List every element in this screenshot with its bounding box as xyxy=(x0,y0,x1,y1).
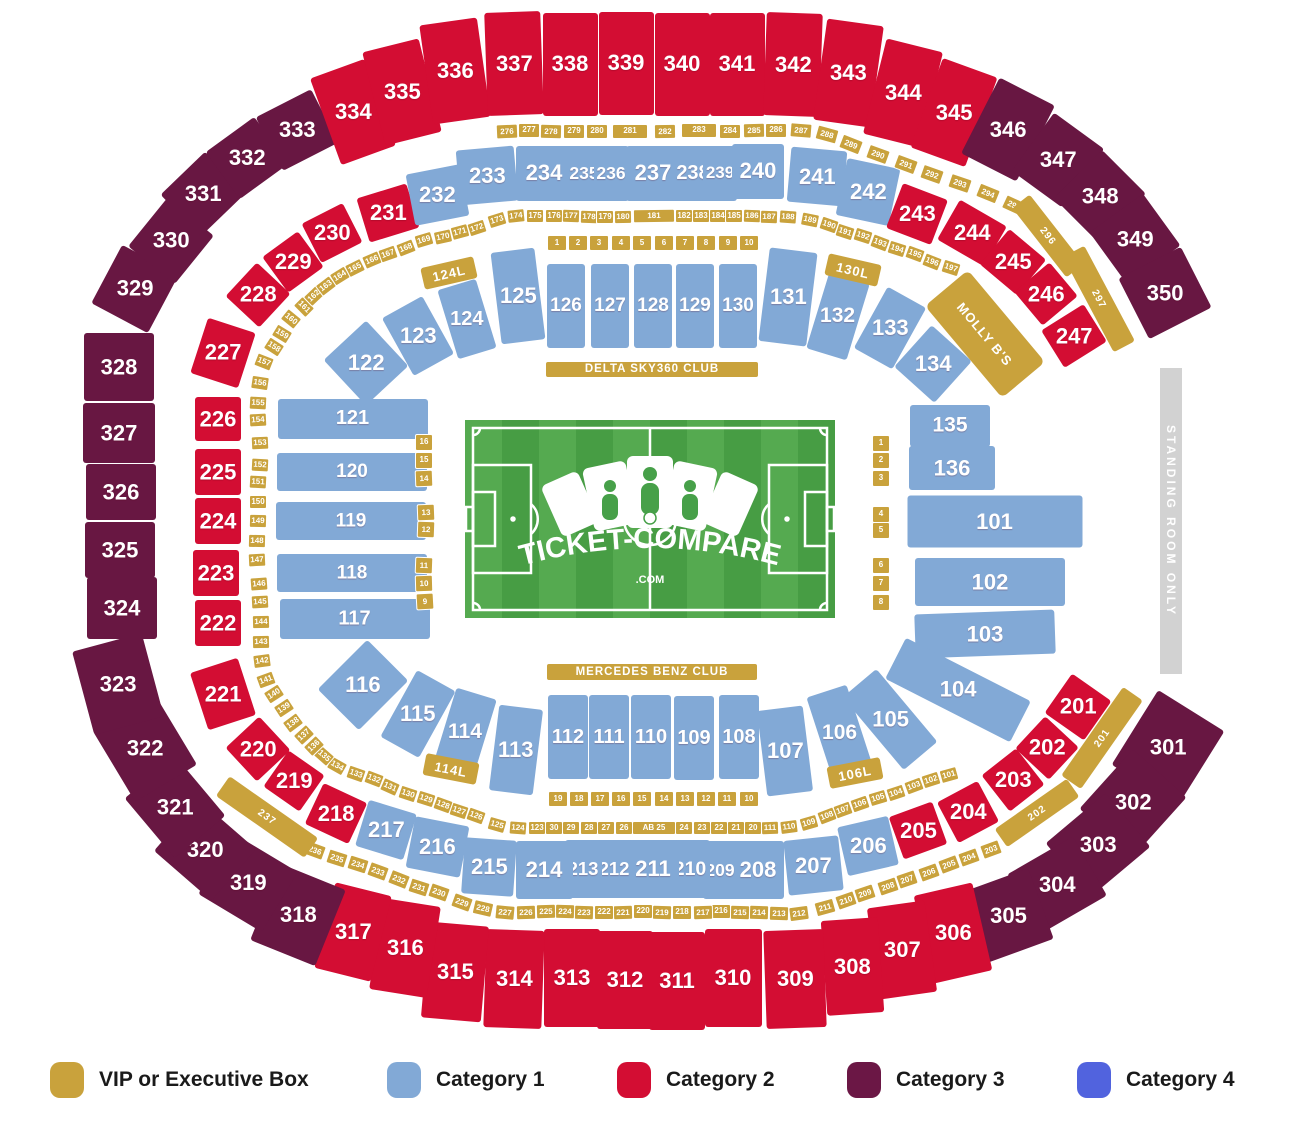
exec-ring-176[interactable]: 176 xyxy=(545,209,563,223)
section-label: 345 xyxy=(936,99,973,125)
section-223[interactable]: 223 xyxy=(193,550,239,596)
fieldcol-right-4[interactable]: 4 xyxy=(872,506,890,523)
section-label: 244 xyxy=(954,220,991,246)
section-label: 122 xyxy=(348,350,385,376)
section-label: 332 xyxy=(229,145,266,171)
suite-top-276[interactable]: 276 xyxy=(496,123,519,139)
section-309[interactable]: 309 xyxy=(763,929,826,1029)
exec-ring-183[interactable]: 183 xyxy=(692,209,710,223)
fieldrow-top-6[interactable]: 6 xyxy=(654,235,674,251)
section-129[interactable]: 129 xyxy=(676,264,714,348)
fieldrow-top-10[interactable]: 10 xyxy=(739,235,759,251)
section-208[interactable]: 208 xyxy=(732,841,784,899)
suite-bottom-234[interactable]: 234 xyxy=(346,854,370,874)
section-125[interactable]: 125 xyxy=(491,248,546,345)
section-226[interactable]: 226 xyxy=(195,397,241,441)
section-314[interactable]: 314 xyxy=(483,929,544,1029)
section-227[interactable]: 227 xyxy=(190,318,255,389)
section-340[interactable]: 340 xyxy=(655,13,710,116)
section-label: 326 xyxy=(103,479,140,505)
section-label: 315 xyxy=(437,959,474,985)
section-341[interactable]: 341 xyxy=(710,13,765,116)
section-313[interactable]: 313 xyxy=(544,929,600,1027)
section-111[interactable]: 111 xyxy=(589,695,629,779)
fieldcol-left-14[interactable]: 14 xyxy=(415,469,434,487)
suite-bottom-204[interactable]: 204 xyxy=(957,847,981,868)
exec-ring-152[interactable]: 152 xyxy=(251,458,270,473)
suite-top-283[interactable]: 283 xyxy=(681,123,717,138)
section-204[interactable]: 204 xyxy=(937,781,999,843)
section-323[interactable]: 323 xyxy=(72,633,164,735)
exec-ring-145[interactable]: 145 xyxy=(251,595,270,610)
section-338[interactable]: 338 xyxy=(543,13,598,116)
section-label: 349 xyxy=(1117,226,1154,252)
section-label: 112 xyxy=(552,726,584,749)
section-label: 113 xyxy=(498,737,534,763)
exec-ring-142[interactable]: 142 xyxy=(252,653,272,669)
fieldrow-top-7[interactable]: 7 xyxy=(675,235,695,251)
section-label: 131 xyxy=(770,284,807,310)
section-label: 118 xyxy=(337,562,368,584)
section-label: 105 xyxy=(872,706,909,732)
section-label: 319 xyxy=(230,870,267,896)
suite-bottom-230[interactable]: 230 xyxy=(427,882,451,903)
fieldrow-bottom-15[interactable]: 15 xyxy=(632,791,652,807)
exec-ring-124[interactable]: 124 xyxy=(509,820,528,835)
suite-top-281[interactable]: 281 xyxy=(612,124,648,139)
section-310[interactable]: 310 xyxy=(705,929,762,1027)
exec-ring-104[interactable]: 104 xyxy=(885,784,907,803)
section-113[interactable]: 113 xyxy=(489,705,543,796)
section-label: 346 xyxy=(990,116,1027,142)
exec-ring-182[interactable]: 182 xyxy=(675,209,693,223)
suite-bottom-228[interactable]: 228 xyxy=(472,898,495,917)
legend-item-category-1: Category 1 xyxy=(387,1062,545,1098)
section-240[interactable]: 240 xyxy=(732,144,784,199)
suite-bottom-222[interactable]: 222 xyxy=(594,905,614,920)
section-311[interactable]: 311 xyxy=(649,932,705,1030)
section-label: 120 xyxy=(336,461,368,483)
exec-ring-151[interactable]: 151 xyxy=(249,475,268,490)
exec-ring-180[interactable]: 180 xyxy=(614,210,632,224)
suite-bottom-213[interactable]: 213 xyxy=(769,905,789,920)
section-119[interactable]: 119 xyxy=(276,502,426,540)
section-216[interactable]: 216 xyxy=(405,816,469,878)
section-label: 214 xyxy=(526,857,563,883)
exec-ring-105[interactable]: 105 xyxy=(867,789,888,808)
section-label: 337 xyxy=(496,50,533,76)
section-label: 328 xyxy=(101,354,138,380)
fieldcol-left-10[interactable]: 10 xyxy=(415,574,433,591)
section-234[interactable]: 234 xyxy=(516,146,573,201)
section-label: 317 xyxy=(335,919,372,945)
section-128[interactable]: 128 xyxy=(634,264,672,348)
section-label: 227 xyxy=(205,340,242,366)
fieldcol-right-3[interactable]: 3 xyxy=(872,470,890,487)
suite-bottom-221[interactable]: 221 xyxy=(613,904,633,920)
section-label: 314 xyxy=(496,966,533,992)
section-112[interactable]: 112 xyxy=(548,695,588,779)
section-label: 129 xyxy=(679,295,711,317)
section-121[interactable]: 121 xyxy=(278,399,428,439)
legend-item-category-3: Category 3 xyxy=(847,1062,1005,1098)
section-label: 211 xyxy=(635,856,671,882)
section-label: 225 xyxy=(200,459,237,485)
section-label: 125 xyxy=(500,283,537,309)
section-label: 218 xyxy=(318,800,355,826)
section-label: 338 xyxy=(552,51,589,77)
stadium-map: TICKET-COMPARE .COM 30130230330430530630… xyxy=(0,0,1298,1136)
section-label: 233 xyxy=(469,162,506,188)
suite-bottom-231[interactable]: 231 xyxy=(407,877,431,897)
section-label: 322 xyxy=(127,735,164,761)
section-label: 312 xyxy=(607,967,644,993)
section-211[interactable]: 211 xyxy=(627,840,679,898)
suite-bottom-212[interactable]: 212 xyxy=(788,904,810,921)
fieldrow-bottom-10[interactable]: 10 xyxy=(739,791,759,807)
section-107[interactable]: 107 xyxy=(757,706,813,797)
section-126[interactable]: 126 xyxy=(547,264,585,348)
section-222[interactable]: 222 xyxy=(195,600,241,646)
section-label: 237 xyxy=(635,160,672,186)
section-326[interactable]: 326 xyxy=(86,464,156,520)
section-label: 133 xyxy=(872,315,909,341)
section-135[interactable]: 135 xyxy=(910,405,990,447)
fieldcol-left-12[interactable]: 12 xyxy=(417,520,436,538)
suite-top-278[interactable]: 278 xyxy=(540,123,562,138)
fieldrow-top-9[interactable]: 9 xyxy=(718,235,738,251)
section-label: 339 xyxy=(608,50,645,76)
fieldcol-left-15[interactable]: 15 xyxy=(415,452,433,469)
suite-bottom-203[interactable]: 203 xyxy=(979,839,1003,860)
section-207[interactable]: 207 xyxy=(783,835,843,895)
section-label: 247 xyxy=(1056,323,1093,349)
suite-top-294[interactable]: 294 xyxy=(975,182,1001,204)
fieldcol-right-7[interactable]: 7 xyxy=(872,575,890,592)
section-101[interactable]: 101 xyxy=(908,495,1083,547)
section-312[interactable]: 312 xyxy=(597,931,653,1029)
section-label: 111 xyxy=(593,726,624,749)
suite-bottom-226[interactable]: 226 xyxy=(516,904,536,919)
exec-ring-185[interactable]: 185 xyxy=(725,209,743,223)
section-label: 209 xyxy=(705,860,734,881)
fieldcol-right-8[interactable]: 8 xyxy=(872,594,890,611)
exec-ring-123[interactable]: 123 xyxy=(528,821,546,835)
section-label: 309 xyxy=(777,966,814,992)
exec-ring-26[interactable]: 26 xyxy=(615,821,633,835)
fieldcol-right-5[interactable]: 5 xyxy=(872,522,890,539)
section-label: 208 xyxy=(740,857,777,883)
section-label: 103 xyxy=(967,621,1004,647)
exec-ring-175[interactable]: 175 xyxy=(526,209,544,223)
section-236[interactable]: 236 xyxy=(594,146,629,201)
section-label: 239 xyxy=(706,163,734,183)
section-label: 318 xyxy=(280,902,317,928)
section-118[interactable]: 118 xyxy=(277,554,427,592)
suite-bottom-235[interactable]: 235 xyxy=(325,848,349,868)
section-label: 127 xyxy=(594,295,626,317)
exec-ring-154[interactable]: 154 xyxy=(249,413,268,428)
section-label: 216 xyxy=(419,834,456,860)
legend-label-vip: VIP or Executive Box xyxy=(99,1068,309,1092)
fieldrow-top-2[interactable]: 2 xyxy=(568,235,588,251)
section-label: 108 xyxy=(722,726,755,749)
fieldcol-left-13[interactable]: 13 xyxy=(417,503,436,521)
section-342[interactable]: 342 xyxy=(763,12,823,117)
section-label: 203 xyxy=(995,767,1032,793)
section-109[interactable]: 109 xyxy=(674,696,714,780)
section-108[interactable]: 108 xyxy=(719,695,759,779)
exec-ring-168[interactable]: 168 xyxy=(395,238,417,258)
fieldrow-top-1[interactable]: 1 xyxy=(547,235,567,251)
exec-ring-188[interactable]: 188 xyxy=(779,209,798,224)
suite-bottom-206[interactable]: 206 xyxy=(917,862,941,883)
fieldrow-bottom-13[interactable]: 13 xyxy=(675,791,695,807)
fieldrow-bottom-11[interactable]: 11 xyxy=(717,791,737,807)
suite-bottom-227[interactable]: 227 xyxy=(494,904,515,921)
section-label: 236 xyxy=(596,163,625,184)
section-label: 344 xyxy=(885,80,922,106)
section-103[interactable]: 103 xyxy=(914,610,1055,659)
section-221[interactable]: 221 xyxy=(190,658,256,731)
section-label: 107 xyxy=(767,738,804,764)
suite-top-280[interactable]: 280 xyxy=(586,124,608,139)
section-label: 205 xyxy=(900,817,937,843)
section-337[interactable]: 337 xyxy=(484,11,544,116)
suite-bottom-219[interactable]: 219 xyxy=(652,904,672,920)
exec-ring-22[interactable]: 22 xyxy=(710,821,728,835)
section-label: 334 xyxy=(335,99,372,125)
fieldcol-right-6[interactable]: 6 xyxy=(872,557,890,574)
suite-bottom-233[interactable]: 233 xyxy=(366,861,390,882)
suite-bottom-214[interactable]: 214 xyxy=(749,904,769,920)
section-215[interactable]: 215 xyxy=(461,837,517,896)
section-label: 212 xyxy=(599,858,630,880)
exec-ring-147[interactable]: 147 xyxy=(248,553,267,568)
exec-ring-30[interactable]: 30 xyxy=(545,821,563,835)
section-label: 114 xyxy=(448,720,482,744)
suite-bottom-215[interactable]: 215 xyxy=(730,904,750,920)
section-label: 348 xyxy=(1082,183,1119,209)
section-label: 343 xyxy=(830,60,867,86)
exec-ring-28[interactable]: 28 xyxy=(580,821,598,835)
legend-label-category-4: Category 4 xyxy=(1126,1068,1235,1092)
exec-ring-169[interactable]: 169 xyxy=(413,231,434,250)
section-label: 226 xyxy=(200,406,237,432)
section-label: 335 xyxy=(384,79,421,105)
exec-ring-125[interactable]: 125 xyxy=(486,816,507,834)
exec-ring-29[interactable]: 29 xyxy=(562,821,580,835)
section-130[interactable]: 130 xyxy=(719,264,757,348)
suite-top-277[interactable]: 277 xyxy=(518,123,540,138)
section-label: 123 xyxy=(400,323,437,349)
exec-ring-ab-25[interactable]: AB 25 xyxy=(632,821,676,835)
exec-ring-101[interactable]: 101 xyxy=(938,766,959,784)
section-label: 135 xyxy=(932,414,967,438)
section-339[interactable]: 339 xyxy=(599,12,654,115)
fieldrow-bottom-17[interactable]: 17 xyxy=(590,791,610,807)
section-label: 222 xyxy=(200,610,237,636)
suite-top-279[interactable]: 279 xyxy=(563,124,585,139)
section-324[interactable]: 324 xyxy=(87,577,157,639)
suite-bottom-211[interactable]: 211 xyxy=(813,897,836,917)
exec-ring-143[interactable]: 143 xyxy=(252,635,270,649)
section-label: 223 xyxy=(198,560,235,586)
section-label: 321 xyxy=(157,794,194,820)
section-label: 347 xyxy=(1040,147,1077,173)
fieldrow-top-3[interactable]: 3 xyxy=(589,235,609,251)
fieldcol-left-16[interactable]: 16 xyxy=(415,434,433,451)
suite-top-293[interactable]: 293 xyxy=(947,172,973,193)
suite-top-284[interactable]: 284 xyxy=(719,124,741,139)
exec-ring-179[interactable]: 179 xyxy=(596,210,614,224)
section-label: 311 xyxy=(659,968,695,994)
section-label: 217 xyxy=(368,817,405,843)
exec-ring-173[interactable]: 173 xyxy=(486,211,507,230)
suite-bottom-232[interactable]: 232 xyxy=(387,868,411,889)
exec-ring-144[interactable]: 144 xyxy=(252,615,270,629)
section-308[interactable]: 308 xyxy=(820,917,883,1016)
exec-ring-172[interactable]: 172 xyxy=(466,219,487,238)
section-label: 119 xyxy=(336,510,367,532)
section-label: 104 xyxy=(940,677,977,703)
exec-ring-181[interactable]: 181 xyxy=(633,209,675,224)
exec-ring-20[interactable]: 20 xyxy=(744,821,762,835)
section-label: 136 xyxy=(934,455,971,481)
section-127[interactable]: 127 xyxy=(591,264,629,348)
exec-ring-186[interactable]: 186 xyxy=(743,209,761,224)
fieldrow-top-4[interactable]: 4 xyxy=(611,235,631,251)
section-label: 130 xyxy=(722,295,754,317)
section-label: 101 xyxy=(977,508,1014,534)
suite-bottom-216[interactable]: 216 xyxy=(711,904,731,919)
logo-sub: .COM xyxy=(636,574,665,586)
fieldrow-top-5[interactable]: 5 xyxy=(632,235,652,251)
section-label: 230 xyxy=(314,220,351,246)
soccer-pitch: TICKET-COMPARE .COM xyxy=(465,420,835,618)
fieldrow-top-8[interactable]: 8 xyxy=(696,235,716,251)
exec-ring-110[interactable]: 110 xyxy=(779,819,799,835)
fieldrow-bottom-16[interactable]: 16 xyxy=(611,791,631,807)
suite-bottom-223[interactable]: 223 xyxy=(574,904,594,920)
section-205[interactable]: 205 xyxy=(889,801,948,859)
exec-ring-177[interactable]: 177 xyxy=(562,209,580,224)
section-325[interactable]: 325 xyxy=(85,522,155,578)
suite-bottom-208[interactable]: 208 xyxy=(876,876,900,897)
exec-ring-148[interactable]: 148 xyxy=(248,534,266,548)
section-328[interactable]: 328 xyxy=(84,333,154,401)
section-label: 242 xyxy=(850,179,887,205)
exec-ring-189[interactable]: 189 xyxy=(800,211,820,228)
section-label: 128 xyxy=(637,295,669,317)
exec-ring-149[interactable]: 149 xyxy=(249,514,267,528)
exec-ring-196[interactable]: 196 xyxy=(921,252,943,272)
section-label: 109 xyxy=(677,727,710,750)
fieldrow-bottom-12[interactable]: 12 xyxy=(696,791,716,807)
exec-ring-24[interactable]: 24 xyxy=(675,821,693,835)
exec-ring-155[interactable]: 155 xyxy=(249,396,268,411)
section-label: 340 xyxy=(664,51,701,77)
suite-top-287[interactable]: 287 xyxy=(789,122,812,139)
section-label: 308 xyxy=(834,953,871,979)
exec-ring-27[interactable]: 27 xyxy=(597,821,615,835)
fieldrow-bottom-18[interactable]: 18 xyxy=(569,791,589,807)
section-label: 243 xyxy=(899,201,936,227)
fieldrow-bottom-14[interactable]: 14 xyxy=(654,791,674,807)
suite-bottom-220[interactable]: 220 xyxy=(633,904,653,919)
legend-item-category-4: Category 4 xyxy=(1077,1062,1235,1098)
fieldcol-left-9[interactable]: 9 xyxy=(416,592,435,610)
fieldcol-right-2[interactable]: 2 xyxy=(872,452,890,469)
section-label: 327 xyxy=(101,420,138,446)
section-label: 231 xyxy=(370,200,407,226)
exec-ring-23[interactable]: 23 xyxy=(693,821,711,835)
section-label: 245 xyxy=(995,249,1032,275)
section-224[interactable]: 224 xyxy=(195,498,241,544)
suite-top-288[interactable]: 288 xyxy=(814,124,839,144)
club-bar-mercedes-benz-club[interactable]: MERCEDES BENZ CLUB xyxy=(547,664,757,680)
section-label: 207 xyxy=(795,852,832,878)
section-136[interactable]: 136 xyxy=(909,446,995,490)
section-327[interactable]: 327 xyxy=(83,403,155,463)
section-label: 342 xyxy=(775,51,812,77)
suite-top-282[interactable]: 282 xyxy=(654,123,676,138)
fieldrow-bottom-19[interactable]: 19 xyxy=(548,791,568,807)
exec-ring-157[interactable]: 157 xyxy=(253,352,275,372)
fieldcol-right-1[interactable]: 1 xyxy=(872,435,890,452)
exec-ring-153[interactable]: 153 xyxy=(251,436,270,451)
suite-bottom-225[interactable]: 225 xyxy=(536,903,556,919)
section-102[interactable]: 102 xyxy=(915,558,1065,606)
exec-ring-197[interactable]: 197 xyxy=(940,259,961,278)
suite-top-285[interactable]: 285 xyxy=(743,122,765,137)
section-214[interactable]: 214 xyxy=(516,841,573,899)
section-233[interactable]: 233 xyxy=(456,145,519,205)
section-label: 336 xyxy=(437,58,474,84)
section-131[interactable]: 131 xyxy=(758,247,817,346)
suite-bottom-224[interactable]: 224 xyxy=(555,903,575,919)
legend-swatch-category-4 xyxy=(1077,1062,1111,1098)
exec-ring-146[interactable]: 146 xyxy=(250,576,269,591)
suite-bottom-217[interactable]: 217 xyxy=(693,904,713,920)
section-label: 331 xyxy=(185,181,222,207)
exec-ring-156[interactable]: 156 xyxy=(250,375,270,391)
exec-ring-174[interactable]: 174 xyxy=(506,208,525,224)
suite-bottom-218[interactable]: 218 xyxy=(672,905,692,920)
exec-ring-21[interactable]: 21 xyxy=(727,821,745,835)
exec-ring-187[interactable]: 187 xyxy=(760,210,778,224)
section-label: 134 xyxy=(915,351,952,377)
section-label: 221 xyxy=(205,681,242,707)
section-336[interactable]: 336 xyxy=(419,17,490,124)
section-120[interactable]: 120 xyxy=(277,453,427,491)
section-225[interactable]: 225 xyxy=(195,449,241,495)
fieldcol-left-11[interactable]: 11 xyxy=(415,556,434,574)
section-206[interactable]: 206 xyxy=(837,816,899,876)
section-110[interactable]: 110 xyxy=(631,695,671,779)
exec-ring-111[interactable]: 111 xyxy=(761,821,779,835)
section-label: 330 xyxy=(153,228,190,254)
exec-ring-150[interactable]: 150 xyxy=(249,495,267,509)
suite-top-286[interactable]: 286 xyxy=(765,123,787,138)
legend-swatch-category-1 xyxy=(387,1062,421,1098)
section-label: 240 xyxy=(740,158,777,184)
suite-top-292[interactable]: 292 xyxy=(919,163,945,184)
exec-ring-109[interactable]: 109 xyxy=(798,814,819,832)
section-117[interactable]: 117 xyxy=(280,599,430,639)
club-bar-delta-sky360-club[interactable]: DELTA SKY360 CLUB xyxy=(546,362,758,377)
suite-bottom-229[interactable]: 229 xyxy=(450,892,474,913)
